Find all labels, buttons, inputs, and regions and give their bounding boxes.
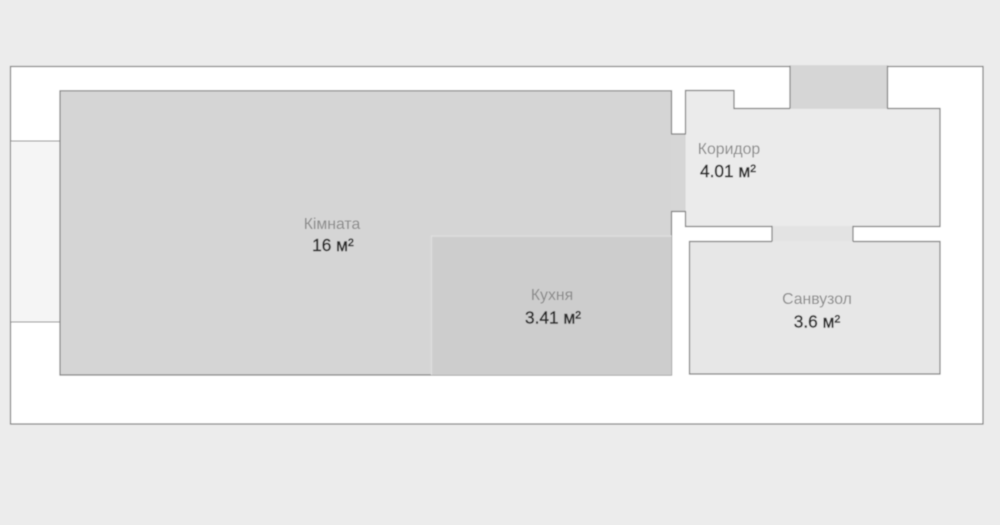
svg-text:Кімната: Кімната <box>304 216 361 233</box>
svg-text:Санвузол: Санвузол <box>782 291 852 308</box>
svg-text:16 м²: 16 м² <box>312 235 354 255</box>
svg-text:3.41 м²: 3.41 м² <box>525 308 581 328</box>
svg-text:4.01 м²: 4.01 м² <box>700 161 756 181</box>
svg-text:3.6 м²: 3.6 м² <box>794 312 841 332</box>
svg-text:Коридор: Коридор <box>698 141 761 158</box>
svg-text:Кухня: Кухня <box>531 287 573 304</box>
